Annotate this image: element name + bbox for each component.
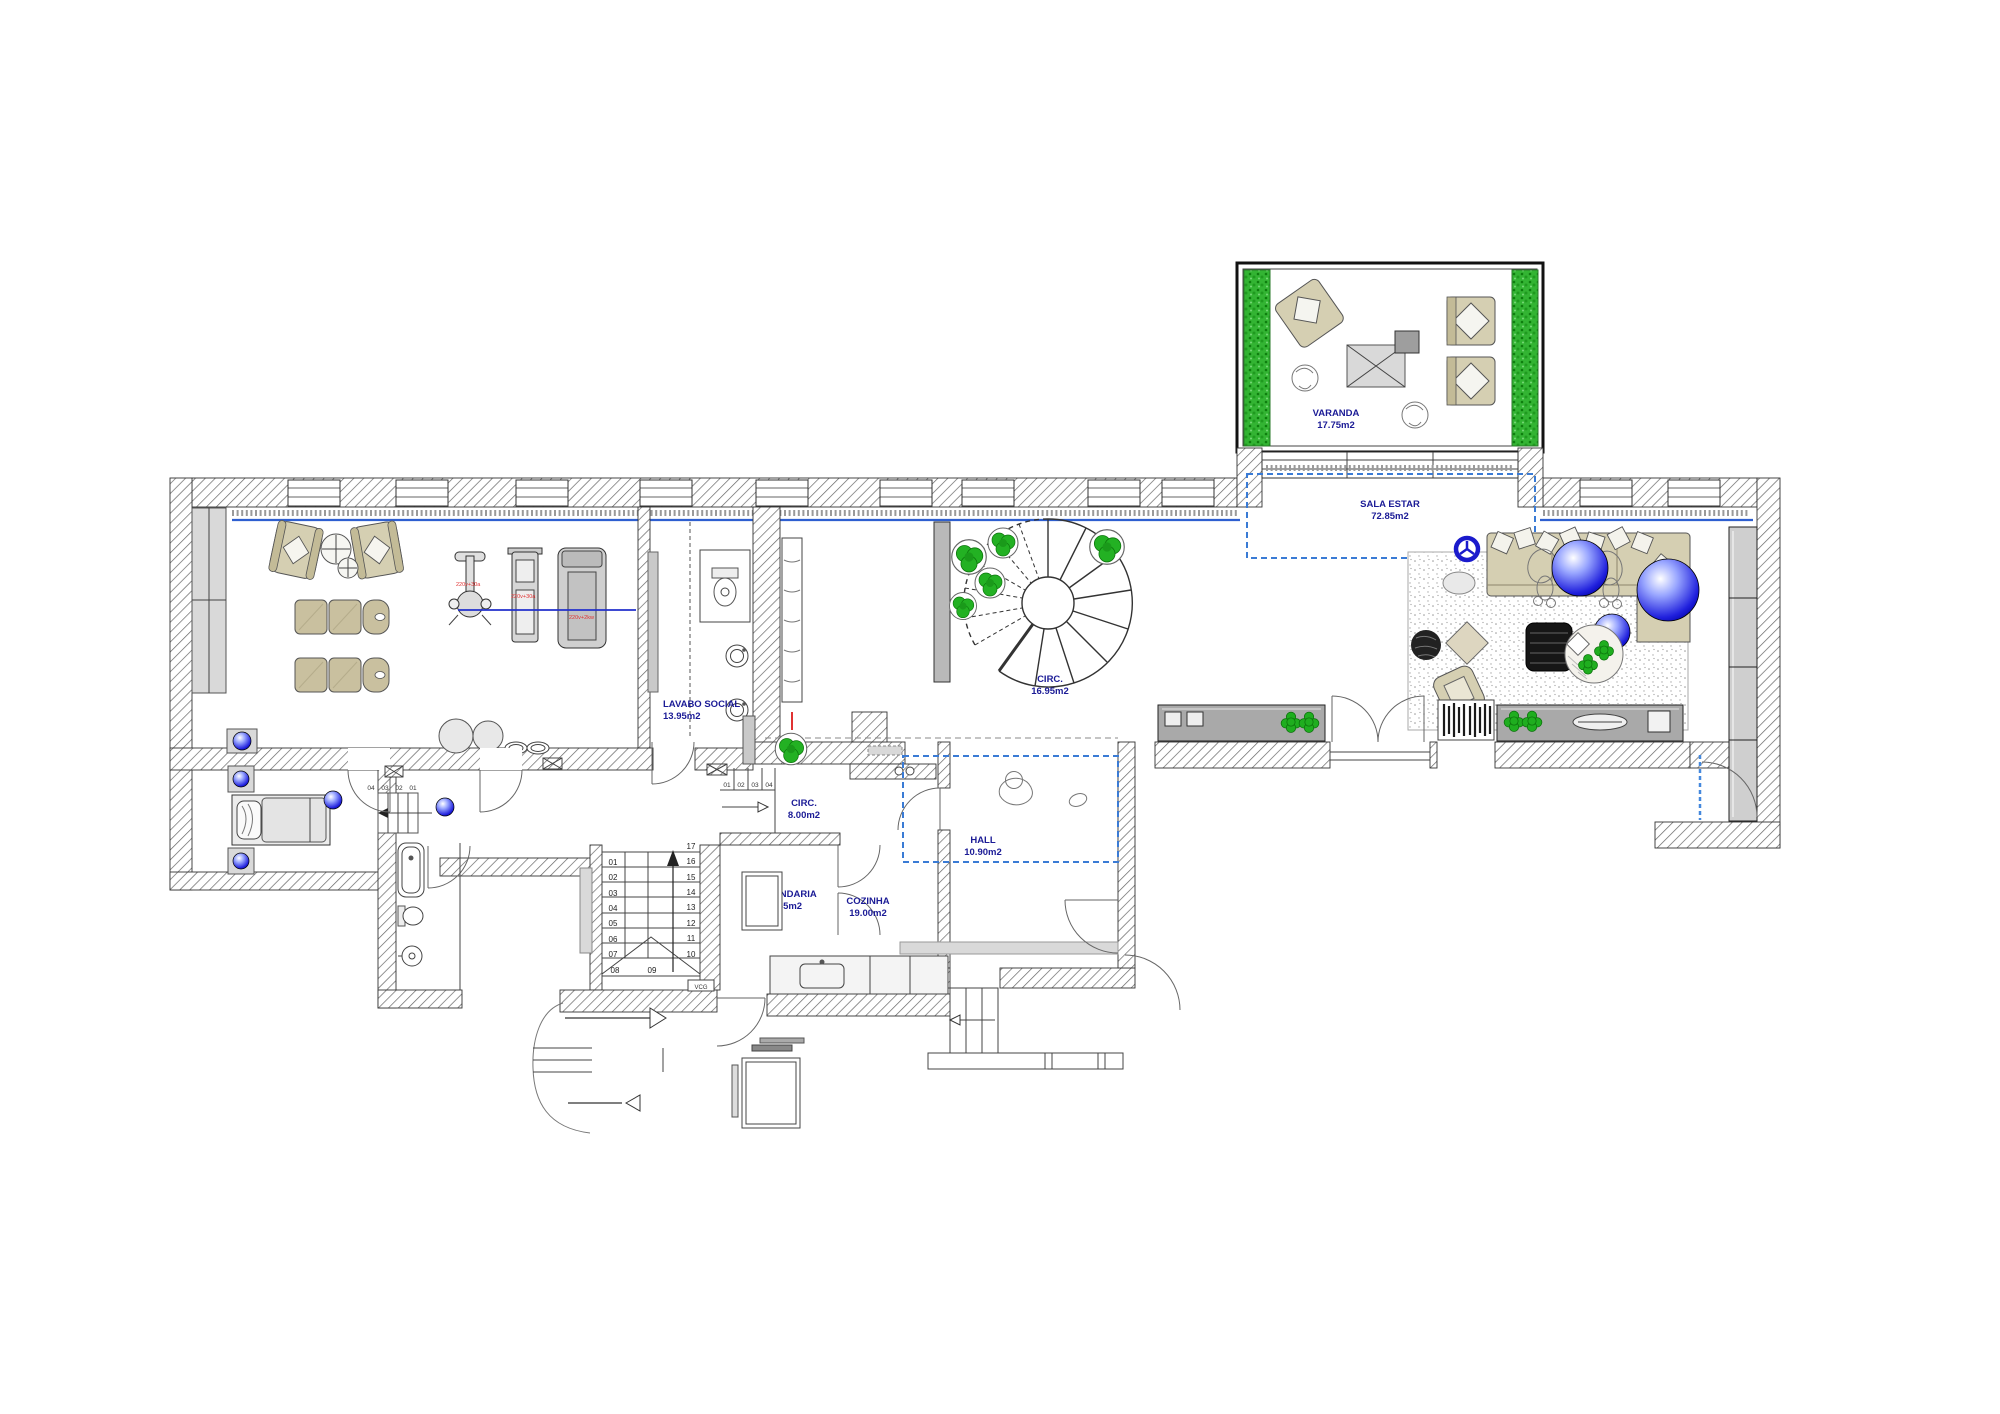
svg-text:08: 08 <box>611 966 620 975</box>
credenza-1 <box>1158 705 1325 741</box>
lavabo-label: LAVABO SOCIAL <box>663 699 740 710</box>
veranda-side-table <box>1395 331 1419 353</box>
kitchen-bottom-counter <box>770 956 948 994</box>
hall-east-wall <box>1118 742 1135 968</box>
window-icon <box>1668 480 1720 506</box>
plant-icon <box>975 568 1005 598</box>
plant-icon <box>950 593 977 620</box>
svg-text:03: 03 <box>609 889 618 898</box>
hall-door-swing <box>898 788 940 830</box>
circ-main-area: 16.95m2 <box>1031 686 1069 697</box>
cozinha-label: COZINHA <box>846 896 889 907</box>
toilet <box>398 906 423 926</box>
window-icon <box>962 480 1014 506</box>
treadmill <box>558 548 606 648</box>
massage-table-1 <box>295 600 389 634</box>
massage-table-2 <box>295 658 389 692</box>
svg-text:17: 17 <box>687 842 696 851</box>
ceiling-fan-icon <box>1456 538 1478 560</box>
svg-text:04: 04 <box>765 782 773 789</box>
svg-text:15: 15 <box>687 873 696 882</box>
living-south-wall-pier <box>1430 742 1437 768</box>
se-bottom-wall <box>1655 822 1780 848</box>
bath-sink <box>398 946 422 966</box>
entry-stair-run: 01 02 03 04 <box>720 768 775 833</box>
svg-text:01: 01 <box>409 785 417 792</box>
hall-kitchen-wall-top <box>938 742 950 788</box>
hall-area: 10.90m2 <box>964 847 1002 858</box>
entry-door-swing <box>717 998 765 1046</box>
lavandaria-north-wall <box>720 833 840 845</box>
cozinha-area: 19.00m2 <box>849 908 887 919</box>
lavabo-counter <box>648 552 658 692</box>
stair-side-strip <box>580 868 592 953</box>
lavabo-social: LAVABO SOCIAL 13.95m2 <box>648 522 750 784</box>
svg-text:13: 13 <box>687 903 696 912</box>
veranda-jamb-left <box>1237 448 1262 507</box>
sink-1 <box>726 645 748 667</box>
svg-text:01: 01 <box>723 782 731 789</box>
entry-steps <box>533 1048 592 1072</box>
bedroom-south-wall <box>170 872 380 890</box>
living-south-wall-a <box>1155 742 1330 768</box>
exercise-bike <box>449 552 491 625</box>
svg-text:12: 12 <box>687 919 696 928</box>
hall-south-wall-b <box>1000 968 1135 988</box>
window-icon <box>640 480 692 506</box>
veranda-jamb-right <box>1518 448 1543 507</box>
svg-text:01: 01 <box>609 858 618 867</box>
treadmill-power-note: 220v+2kw <box>569 615 594 621</box>
south-wall-a <box>560 990 717 1012</box>
bath-south-wall <box>378 990 462 1008</box>
svg-text:VCG: VCG <box>694 985 707 991</box>
nightstand-2 <box>228 848 254 874</box>
window-icon <box>1088 480 1140 506</box>
lavabo-area: 13.95m2 <box>663 711 701 722</box>
circ-main-label: CIRC. <box>1037 674 1063 685</box>
washing-machine <box>742 872 782 930</box>
gym-room: 220v+30a 220v+30a 220v+2kw <box>192 508 636 754</box>
svg-text:02: 02 <box>737 782 745 789</box>
varanda-area: 17.75m2 <box>1317 420 1355 431</box>
gym-power-note: 220v+30a <box>511 594 536 600</box>
plant-icon <box>775 733 807 765</box>
stair-east-wall <box>700 845 720 990</box>
svg-text:09: 09 <box>648 966 657 975</box>
svg-text:16: 16 <box>687 857 696 866</box>
svg-text:06: 06 <box>609 935 618 944</box>
entry-area <box>533 998 804 1133</box>
stool-with-orb <box>227 729 257 753</box>
sala-label: SALA ESTAR <box>1360 499 1420 510</box>
oval-pouf <box>1443 572 1475 594</box>
kitchen-doors <box>838 845 880 935</box>
blue-orb-lamp-icon <box>1552 540 1608 596</box>
entry-bench <box>732 1065 738 1117</box>
living-south-wall-b <box>1495 742 1690 768</box>
window-icon <box>880 480 932 506</box>
nightstand-1 <box>228 766 254 792</box>
svg-text:04: 04 <box>609 904 618 913</box>
plant-icon <box>1090 530 1125 565</box>
spiral-stair-area: CIRC. 16.95m2 <box>782 519 1132 702</box>
window-icon <box>396 480 448 506</box>
spiral-pillar-wall <box>934 522 950 682</box>
circ-small-area: 8.00m2 <box>788 810 820 821</box>
svg-text:03: 03 <box>381 785 389 792</box>
bedroom-stair-run: 04 03 02 01 <box>367 785 432 833</box>
svg-text:05: 05 <box>609 919 618 928</box>
svg-text:04: 04 <box>367 785 375 792</box>
mid-gray-strip <box>743 716 755 764</box>
window-icon <box>1580 480 1632 506</box>
veranda-lounge-chair-1 <box>1447 297 1495 345</box>
toilet-enclosure <box>700 550 750 622</box>
credenza-2 <box>1497 705 1683 741</box>
plant-icon <box>988 528 1018 558</box>
lavabo-circ-wall <box>753 507 780 748</box>
veranda-lounge-chair-2 <box>1447 357 1495 405</box>
dark-pouf <box>1411 630 1441 660</box>
blue-orb-lamp-icon <box>233 853 249 869</box>
blue-orb-lamp-icon <box>233 732 251 750</box>
black-coffee-table <box>1526 623 1572 671</box>
hedge-right-icon <box>1512 270 1538 446</box>
vcg-box: VCG <box>688 980 714 991</box>
east-outer-wall <box>1757 478 1780 848</box>
svg-text:02: 02 <box>609 873 618 882</box>
hall-label: HALL <box>970 835 996 846</box>
floor-plan-page: VARANDA 17.75m2 <box>0 0 2000 1414</box>
blue-orb-lamp-icon <box>1637 559 1699 621</box>
south-wall-b <box>767 994 950 1016</box>
blue-orb-lamp-icon <box>324 791 342 809</box>
entry-curve <box>533 1003 590 1133</box>
window-icon <box>516 480 568 506</box>
svg-text:10: 10 <box>687 950 696 959</box>
single-bed <box>232 795 330 845</box>
round-side-table <box>1565 625 1623 683</box>
svg-text:03: 03 <box>751 782 759 789</box>
gym-armchair-1 <box>268 520 324 580</box>
arrow-left-icon <box>626 1095 640 1111</box>
arrow-right-icon <box>758 802 768 812</box>
hedge-left-icon <box>1244 270 1270 446</box>
exercise-ball-2 <box>473 721 503 751</box>
window-icon <box>288 480 340 506</box>
top-wall-right <box>1543 478 1757 507</box>
west-outer-wall <box>170 478 192 890</box>
bike-power-note: 220v+30a <box>456 582 481 588</box>
exercise-ball-1 <box>439 719 473 753</box>
blue-orb-lamp-icon <box>233 771 249 787</box>
circ-small-label: CIRC. <box>791 798 817 809</box>
hall-person-sketch <box>999 772 1088 809</box>
bookshelf <box>1438 700 1494 740</box>
window-icon <box>756 480 808 506</box>
svg-text:07: 07 <box>609 950 618 959</box>
door-swing-icon <box>652 742 694 784</box>
svg-text:02: 02 <box>395 785 403 792</box>
floor-plan-canvas: VARANDA 17.75m2 <box>0 0 2000 1414</box>
blue-orb-lamp-icon <box>436 798 454 816</box>
veranda: VARANDA 17.75m2 <box>1237 263 1543 452</box>
top-wall-left <box>192 478 1237 507</box>
window-icon <box>1162 480 1214 506</box>
varanda-label: VARANDA <box>1313 408 1360 419</box>
plant-icon <box>952 540 987 575</box>
svg-text:14: 14 <box>687 888 696 897</box>
entry-table <box>732 1038 804 1128</box>
svg-text:11: 11 <box>687 934 696 943</box>
sala-area: 72.85m2 <box>1371 511 1409 522</box>
